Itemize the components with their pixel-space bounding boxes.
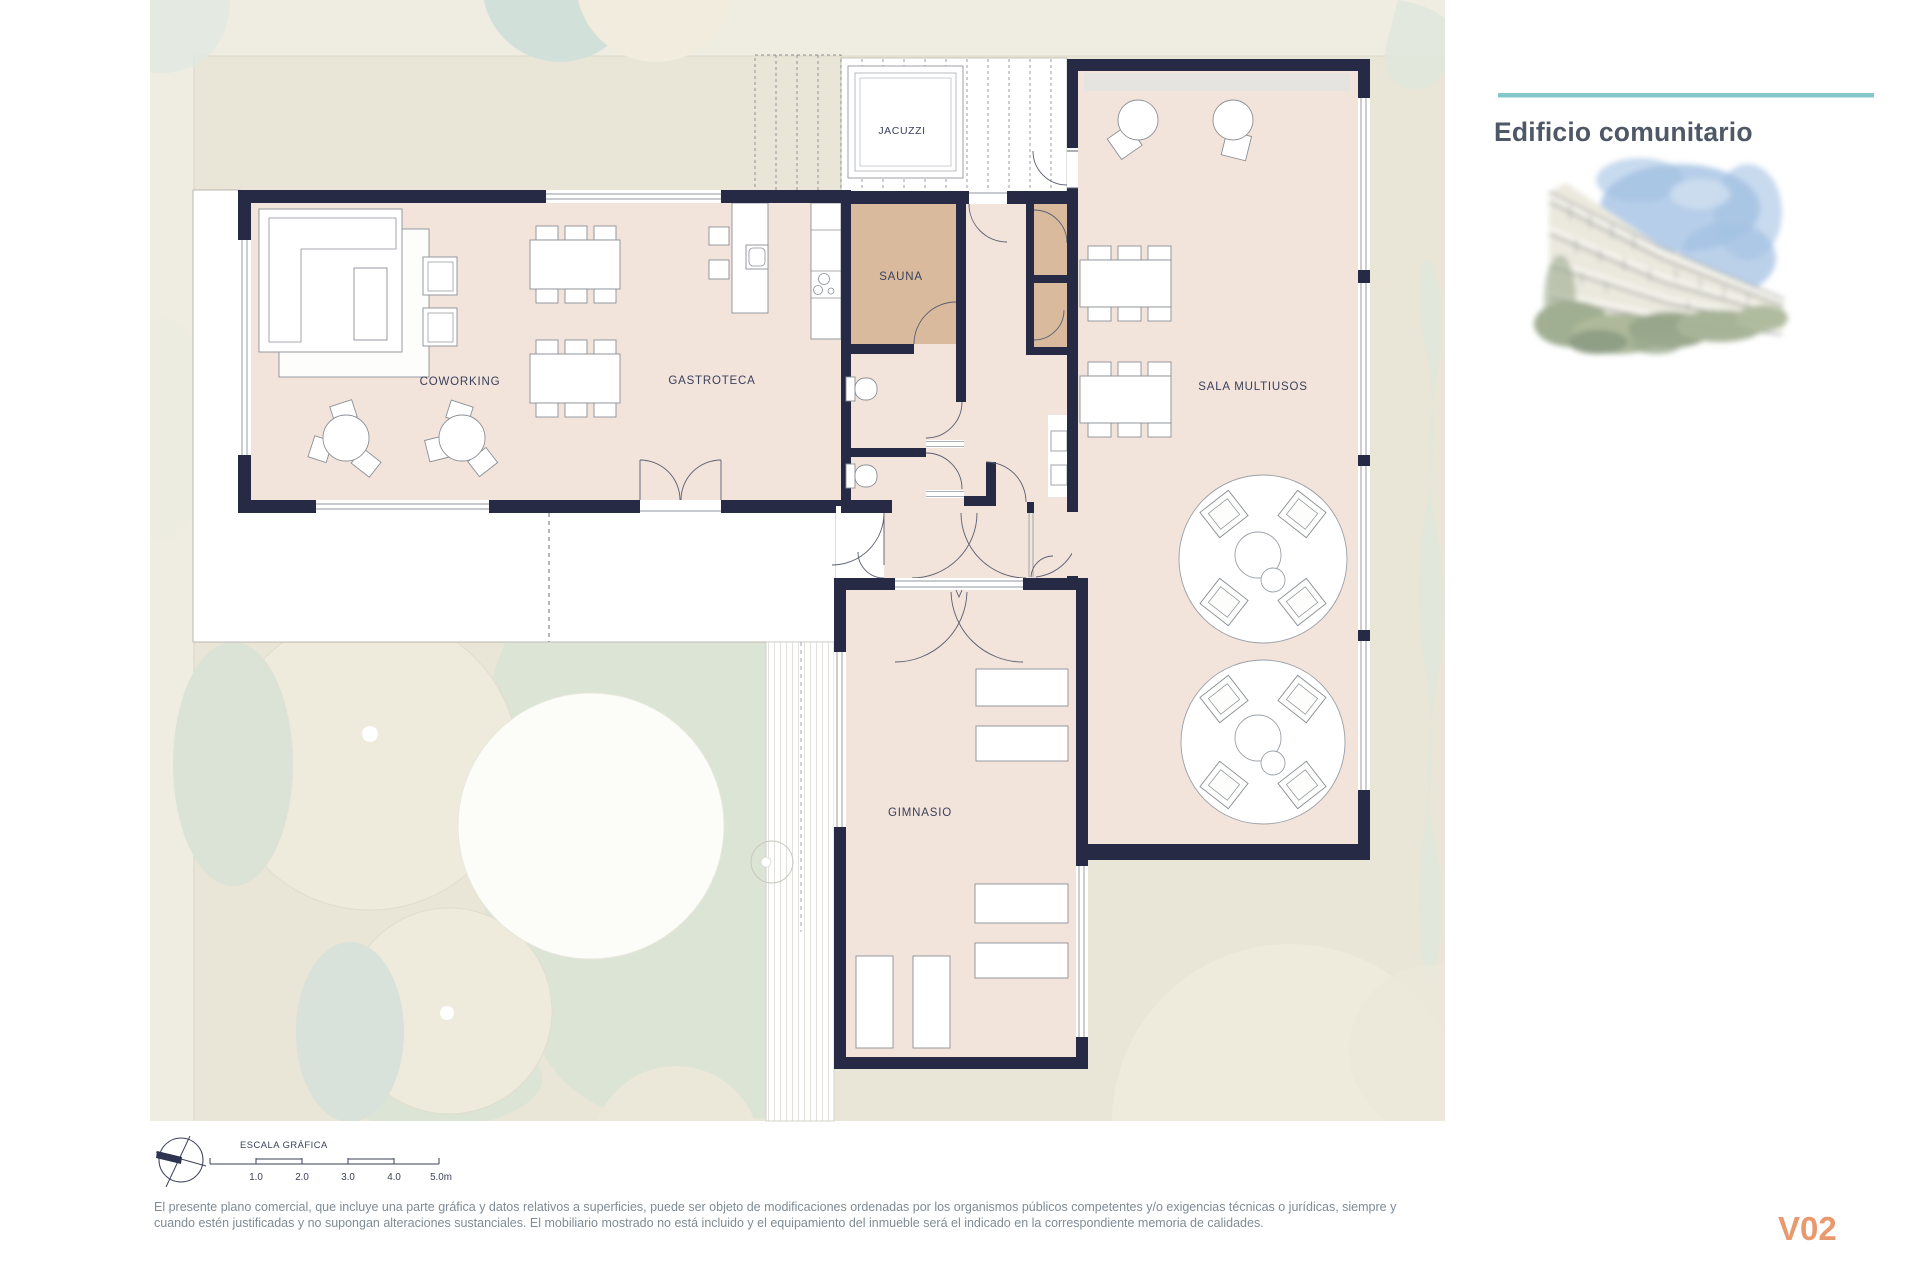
svg-text:COWORKING: COWORKING [420, 376, 501, 388]
svg-text:GIMNASIO: GIMNASIO [888, 807, 952, 819]
svg-text:SALA MULTIUSOS: SALA MULTIUSOS [1198, 381, 1307, 393]
svg-text:2.0: 2.0 [295, 1172, 309, 1183]
svg-text:cuando estén justificadas y no: cuando estén justificadas y no supongan … [154, 1216, 1264, 1230]
svg-text:GASTROTECA: GASTROTECA [668, 375, 755, 387]
svg-text:Edificio comunitario: Edificio comunitario [1494, 117, 1753, 147]
svg-text:V02: V02 [1778, 1210, 1837, 1247]
svg-text:El presente plano comercial, q: El presente plano comercial, que incluye… [154, 1200, 1397, 1214]
svg-text:SAUNA: SAUNA [879, 271, 923, 283]
svg-text:1.0: 1.0 [249, 1172, 263, 1183]
svg-text:4.0: 4.0 [387, 1172, 401, 1183]
svg-text:ESCALA GRÁFICA: ESCALA GRÁFICA [240, 1139, 328, 1150]
svg-text:JACUZZI: JACUZZI [878, 125, 925, 137]
svg-text:5.0m: 5.0m [430, 1172, 452, 1183]
svg-text:3.0: 3.0 [341, 1172, 355, 1183]
